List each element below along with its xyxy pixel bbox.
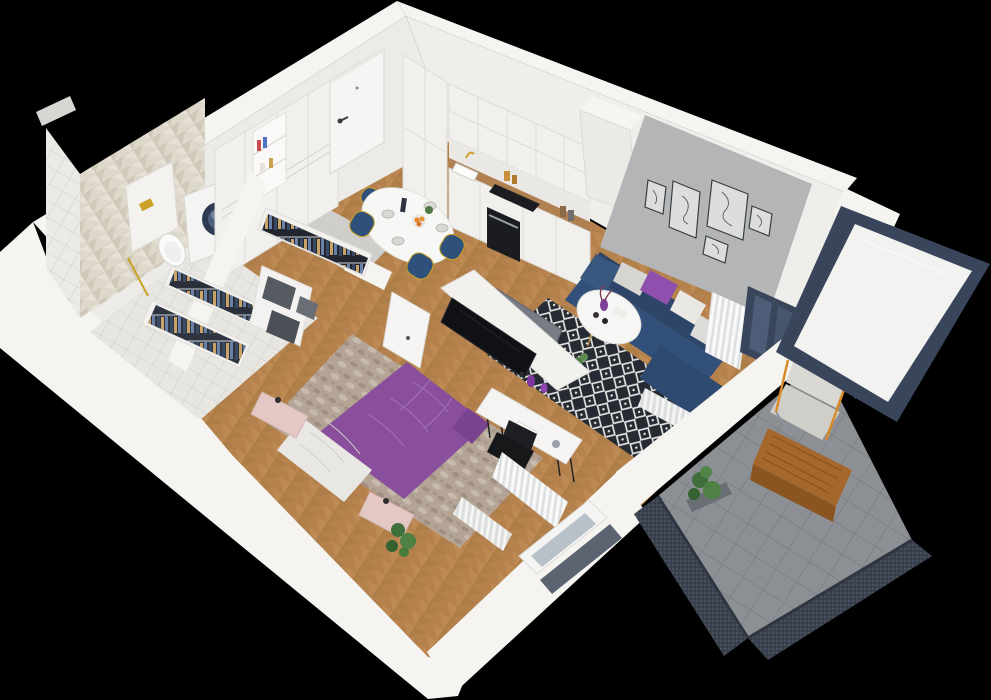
floorplan-render — [0, 0, 991, 700]
book — [269, 158, 273, 168]
book — [257, 140, 261, 151]
orange — [417, 222, 422, 227]
jar — [560, 206, 566, 217]
purple-vase — [527, 375, 535, 387]
jar — [504, 171, 510, 181]
book — [260, 163, 265, 173]
door-handle — [406, 336, 410, 340]
picture-frame — [669, 181, 700, 238]
table-lamp — [383, 498, 389, 504]
purple-vase — [541, 383, 548, 393]
book — [263, 137, 267, 148]
plate — [436, 224, 448, 232]
jar — [512, 175, 517, 184]
cup — [520, 372, 525, 377]
plate — [392, 237, 404, 245]
plate — [382, 210, 394, 218]
purple-vase — [600, 299, 608, 311]
table-plant — [425, 206, 433, 214]
desk-lamp — [552, 440, 560, 448]
cup — [602, 318, 608, 324]
peephole — [356, 87, 359, 90]
orange — [420, 217, 425, 222]
jar — [568, 210, 574, 221]
cup — [593, 312, 599, 318]
table-lamp — [275, 397, 281, 403]
